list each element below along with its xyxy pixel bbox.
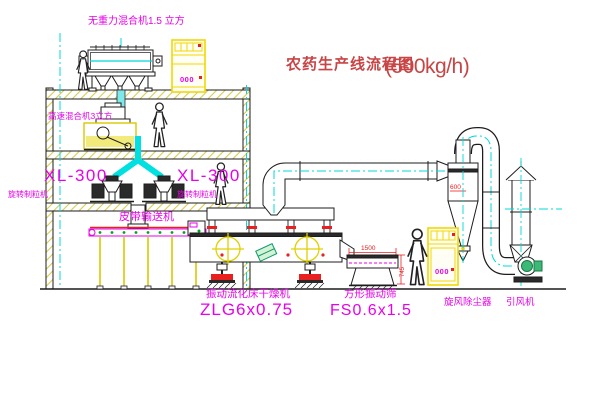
granulator1-model: XL-300 <box>44 166 108 185</box>
sieve-model-label: FS0.6x1.5 <box>330 302 412 319</box>
control-cabinet-1: 000 <box>172 40 205 92</box>
granulator1-name: 旋转制粒机 <box>8 189 48 199</box>
square-vibrating-sieve: 1500 745 <box>347 245 406 290</box>
operator-figure <box>152 103 167 147</box>
fan-label: 引风机 <box>506 296 535 308</box>
high-speed-mixer <box>84 103 136 150</box>
belt-conveyor-label: 皮带输送机 <box>119 209 174 223</box>
granulator2-name: 旋转制粒机 <box>177 189 217 199</box>
sieve-height-dim: 745 <box>400 266 406 277</box>
cad-flow-diagram: 000 <box>0 0 600 403</box>
indicator-light <box>451 268 454 271</box>
cabinet1-display: 000 <box>180 75 194 84</box>
gravity-mixer-label: 无重力混合机1.5 立方 <box>88 14 185 27</box>
high-speed-mixer-label: 高速混合机3立方 <box>48 111 112 121</box>
title-capacity: (500kg/h) <box>385 55 469 78</box>
cyclone-label: 旋风除尘器 <box>444 296 492 308</box>
sieve-name-label: 方形振动筛 <box>344 287 397 300</box>
vibration-springs <box>207 220 332 233</box>
cyclone-diameter-dim: 600 <box>450 184 461 191</box>
exhaust-duct <box>263 161 450 215</box>
operator-figure <box>408 229 427 284</box>
dryer-name-label: 振动流化床干燥机 <box>206 287 290 300</box>
drawing-title: 农药生产线流程图 (500kg/h) <box>285 55 469 78</box>
indicator-light <box>198 44 201 47</box>
process-flow-drawing: 000 <box>0 0 600 403</box>
conveyor-legs <box>100 237 196 287</box>
control-cabinet-2: 000 <box>428 228 458 285</box>
dryer-feet <box>209 262 323 283</box>
belt-conveyor <box>89 228 206 290</box>
conveyor-rollers <box>99 231 198 234</box>
fluid-bed-dryer <box>190 208 354 288</box>
cabinet2-display: 000 <box>435 267 449 276</box>
gravity-free-mixer <box>79 45 162 91</box>
sieve-length-dim: 1500 <box>361 245 376 252</box>
indicator-light <box>452 233 455 236</box>
dryer-model-label: ZLG6x0.75 <box>200 300 293 319</box>
indicator-light <box>199 76 202 79</box>
granulator2-model: XL-300 <box>177 166 241 185</box>
